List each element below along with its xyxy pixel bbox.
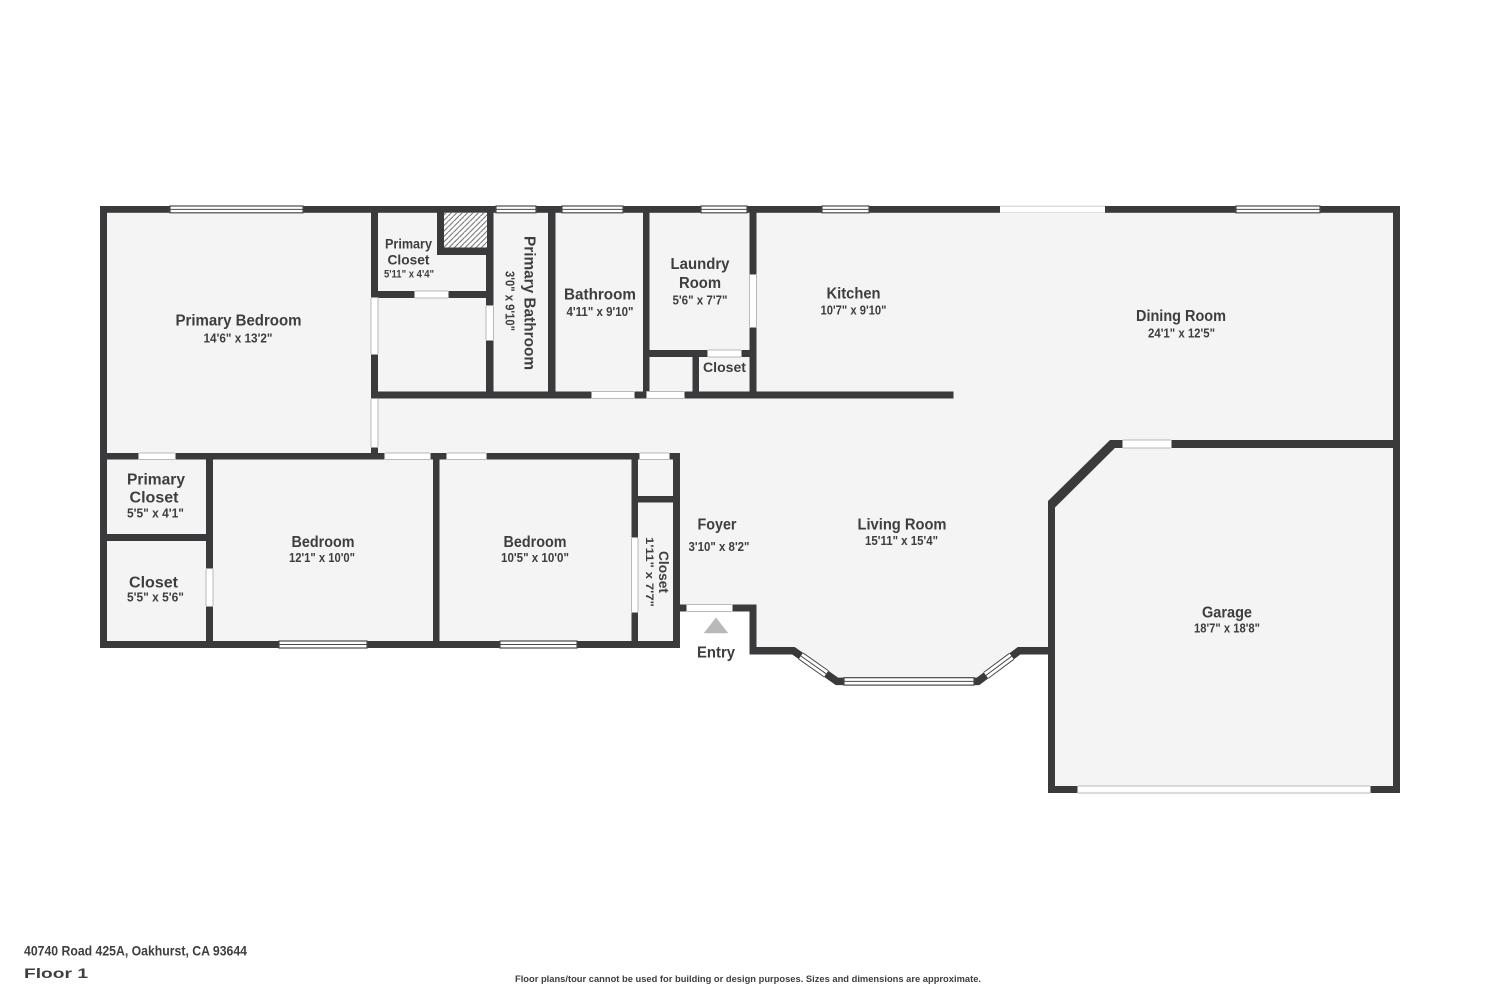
svg-text:24'1" x 12'5": 24'1" x 12'5": [1148, 327, 1215, 341]
svg-text:Closet: Closet: [703, 360, 747, 375]
svg-text:Bathroom: Bathroom: [564, 287, 636, 304]
svg-text:15'11" x 15'4": 15'11" x 15'4": [865, 534, 938, 548]
svg-text:Primary: Primary: [127, 472, 185, 489]
svg-text:5'6" x 7'7": 5'6" x 7'7": [673, 294, 728, 308]
svg-text:14'6" x 13'2": 14'6" x 13'2": [204, 332, 273, 346]
svg-text:Primary: Primary: [385, 237, 432, 252]
svg-text:Laundry: Laundry: [671, 256, 730, 273]
svg-text:Closet: Closet: [129, 575, 179, 592]
svg-text:Room: Room: [679, 275, 721, 292]
svg-text:3'10" x 8'2": 3'10" x 8'2": [689, 540, 750, 554]
svg-text:18'7" x 18'8": 18'7" x 18'8": [1194, 622, 1260, 636]
svg-text:10'5" x 10'0": 10'5" x 10'0": [501, 551, 569, 565]
svg-text:Primary Bathroom: Primary Bathroom: [521, 236, 538, 370]
svg-text:Primary Bedroom: Primary Bedroom: [176, 313, 302, 330]
svg-text:Entry: Entry: [697, 645, 735, 662]
svg-text:5'11" x 4'4": 5'11" x 4'4": [384, 269, 434, 281]
svg-text:Closet: Closet: [656, 551, 671, 594]
svg-text:12'1" x 10'0": 12'1" x 10'0": [289, 551, 355, 565]
svg-text:3'0" x 9'10": 3'0" x 9'10": [503, 271, 517, 331]
svg-text:Kitchen: Kitchen: [827, 286, 881, 303]
svg-text:Bedroom: Bedroom: [292, 534, 355, 551]
svg-text:40740 Road 425A, Oakhurst, CA: 40740 Road 425A, Oakhurst, CA 93644: [24, 943, 247, 959]
svg-text:Living Room: Living Room: [858, 517, 947, 534]
svg-text:10'7" x 9'10": 10'7" x 9'10": [821, 304, 887, 318]
svg-text:Closet: Closet: [388, 253, 431, 268]
svg-text:Closet: Closet: [130, 490, 180, 507]
svg-text:Foyer: Foyer: [698, 517, 737, 534]
svg-text:1'11" x 7'7": 1'11" x 7'7": [643, 537, 655, 607]
svg-text:5'5" x 5'6": 5'5" x 5'6": [127, 591, 184, 605]
svg-text:Garage: Garage: [1202, 605, 1252, 622]
svg-text:Bedroom: Bedroom: [504, 534, 567, 551]
svg-text:Floor 1: Floor 1: [24, 966, 88, 981]
svg-text:Dining Room: Dining Room: [1136, 308, 1226, 325]
svg-text:Floor plans/tour cannot be use: Floor plans/tour cannot be used for buil…: [515, 974, 981, 985]
svg-text:5'5" x 4'1": 5'5" x 4'1": [127, 507, 184, 521]
svg-text:4'11" x 9'10": 4'11" x 9'10": [567, 305, 634, 319]
